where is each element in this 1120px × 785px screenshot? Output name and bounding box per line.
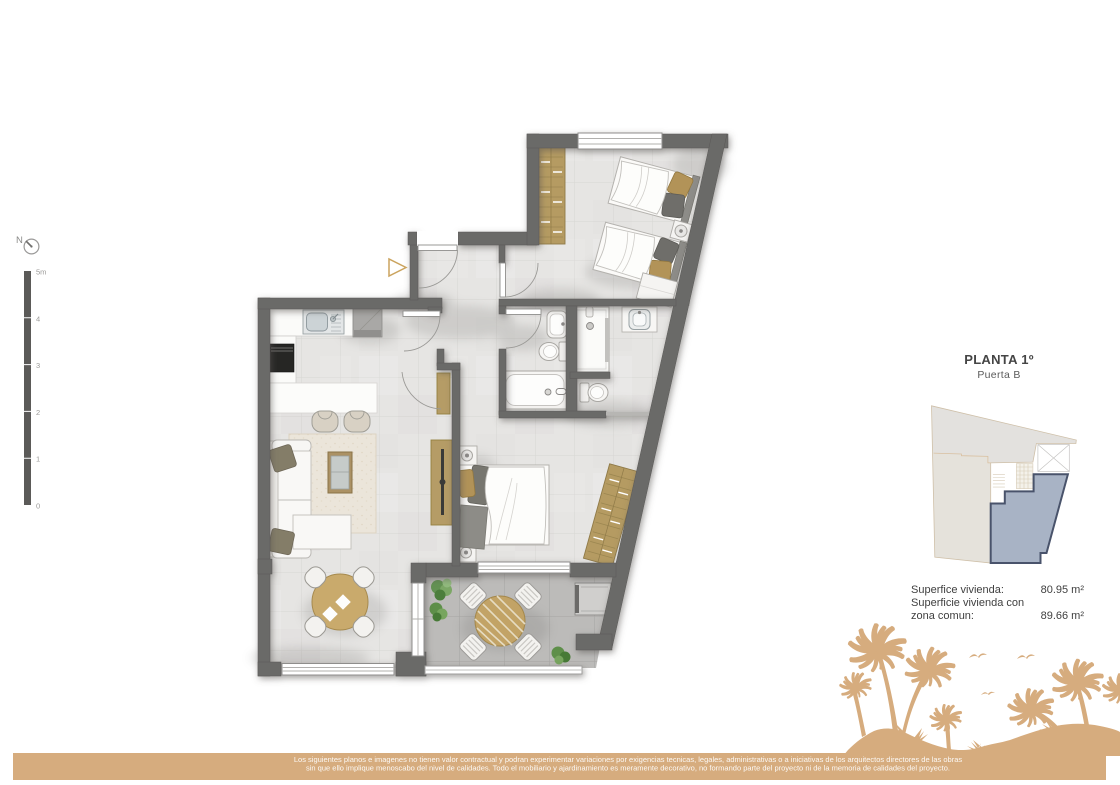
svg-text:80.95 m²: 80.95 m² xyxy=(1041,584,1085,596)
svg-text:89.66 m²: 89.66 m² xyxy=(1041,610,1085,622)
svg-text:sin que ello implique menoscab: sin que ello implique menoscabo del nive… xyxy=(306,764,950,773)
svg-text:2: 2 xyxy=(36,408,40,417)
svg-text:Superfice vivienda:: Superfice vivienda: xyxy=(911,584,1004,596)
svg-text:Superficie vivienda con: Superficie vivienda con xyxy=(911,597,1024,609)
svg-text:Puerta B: Puerta B xyxy=(977,369,1020,381)
svg-text:0: 0 xyxy=(36,502,40,511)
svg-text:3: 3 xyxy=(36,361,40,370)
svg-text:1: 1 xyxy=(36,455,40,464)
svg-text:PLANTA 1º: PLANTA 1º xyxy=(964,352,1034,367)
svg-text:zona comun:: zona comun: xyxy=(911,610,974,622)
svg-text:N: N xyxy=(16,235,23,246)
svg-text:5m: 5m xyxy=(36,268,46,277)
svg-text:4: 4 xyxy=(36,314,40,323)
